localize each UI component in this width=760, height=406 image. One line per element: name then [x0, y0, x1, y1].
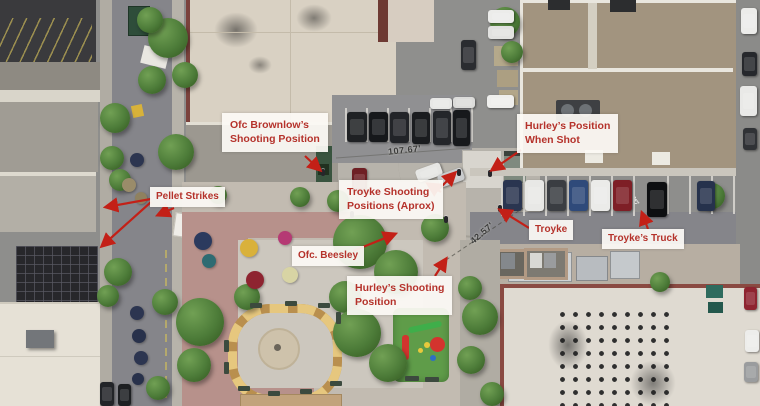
annotation-line: Hurley’s Shooting [355, 281, 444, 295]
roof-stain [548, 320, 588, 370]
person-figure [498, 205, 502, 212]
annotation-line: When Shot [525, 133, 610, 147]
annotation-line: Troyke’s Truck [608, 232, 678, 246]
bench [405, 376, 419, 381]
person-figure [457, 169, 461, 176]
car [488, 26, 514, 39]
car [430, 98, 452, 109]
car [453, 110, 470, 146]
roof-seam [190, 32, 392, 33]
car [433, 111, 451, 145]
sidewalk [470, 168, 736, 176]
building-roof [0, 102, 98, 172]
tree [100, 103, 130, 133]
annotation-troyke: Troyke [529, 220, 573, 240]
utility-box-green [706, 285, 723, 298]
car [118, 384, 131, 406]
bench [336, 312, 341, 324]
parking-stall-line [633, 176, 635, 216]
building-roof [0, 90, 100, 102]
planter-circle [278, 231, 292, 245]
play-dot-yellow [424, 342, 430, 348]
car [613, 180, 632, 211]
parking-stall-line [667, 176, 669, 214]
car [741, 8, 757, 34]
bench [268, 391, 280, 396]
bench [425, 377, 439, 382]
roof-unit-dark [548, 0, 570, 10]
roof-seam [290, 0, 291, 120]
planter-circle [240, 239, 258, 257]
car [487, 95, 514, 108]
bench [238, 386, 250, 391]
roof-stain [214, 12, 258, 48]
tree [369, 344, 407, 382]
umbrella-canopy [132, 373, 144, 385]
annotation-troyke-positions: Troyke Shooting Positions (Aprox) [339, 180, 443, 219]
troykes-truck-vehicle [647, 182, 667, 217]
annotation-line: Shooting Position [230, 132, 320, 146]
car [503, 180, 522, 211]
utility-box-green [708, 302, 723, 313]
tree [152, 289, 178, 315]
annotation-line: Pellet Strikes [156, 190, 219, 204]
tree [137, 7, 163, 33]
car [547, 180, 566, 211]
fountain-center [274, 344, 281, 351]
car [488, 10, 514, 23]
bench [224, 340, 229, 352]
tree [177, 348, 211, 382]
umbrella-canopy [134, 351, 148, 365]
bench [300, 389, 312, 394]
annotation-line: Ofc. Beesley [298, 249, 358, 263]
hvac-cluster [576, 256, 608, 281]
umbrella-canopy [130, 153, 144, 167]
car [697, 181, 715, 211]
aerial-photo: ♿ 107.67' 42.57' [0, 0, 760, 406]
car [100, 382, 114, 406]
parking-stall-line [733, 176, 735, 214]
tree [104, 258, 132, 286]
bench [224, 362, 229, 374]
annotation-troykes-truck: Troyke’s Truck [602, 229, 684, 249]
equipment-yellow [131, 104, 144, 118]
annotation-hurley-shooting: Hurley’s Shooting Position [347, 276, 452, 315]
tree [457, 346, 485, 374]
car [525, 180, 544, 211]
tree [138, 66, 166, 94]
car [347, 112, 367, 142]
dumpster-white [530, 253, 542, 268]
tree [158, 134, 194, 170]
planter-circle [282, 267, 298, 283]
annotation-hurley-when-shot: Hurley’s Position When Shot [517, 114, 618, 153]
car [743, 128, 757, 150]
parking-stall-line [471, 108, 473, 142]
tree [176, 298, 224, 346]
annotation-pellet-strikes: Pellet Strikes [150, 187, 225, 207]
annotation-ofc-beesley: Ofc. Beesley [292, 246, 364, 266]
roof-walk-line [523, 68, 733, 72]
umbrella-canopy [122, 178, 136, 192]
car [740, 86, 757, 116]
person-figure [444, 216, 448, 223]
roof-seam [0, 356, 104, 357]
skylight-white [652, 152, 670, 165]
planter-strip-tan [240, 394, 342, 406]
car [461, 40, 476, 70]
person-figure [488, 170, 492, 177]
planter-circle [194, 232, 212, 250]
roof-walk-line [588, 3, 597, 69]
play-dome-red [430, 337, 445, 352]
car [453, 97, 475, 108]
annotation-ofc-brownlow: Ofc Brownlow’s Shooting Position [222, 113, 328, 152]
umbrella-canopy [130, 306, 144, 320]
tree [146, 376, 170, 400]
bench [318, 303, 330, 308]
car [745, 330, 759, 352]
dumpster-gray [544, 253, 556, 268]
bench [285, 301, 297, 306]
small-building [378, 0, 434, 42]
umbrella-canopy [132, 329, 146, 343]
tree [290, 187, 310, 207]
car [369, 112, 388, 142]
car [742, 52, 757, 76]
play-dot-yellow [418, 348, 423, 353]
car [569, 180, 588, 211]
tree [501, 41, 523, 63]
building-roof-white [0, 302, 104, 406]
planter-circle [202, 254, 216, 268]
roof-stain [248, 56, 272, 74]
hvac-cluster [610, 251, 640, 279]
bench [250, 303, 262, 308]
building-roof [0, 62, 100, 90]
roof-stain [630, 360, 676, 406]
tree [458, 276, 482, 300]
planter-circle [246, 271, 264, 289]
tree [650, 272, 670, 292]
dumpster-gray [501, 253, 515, 269]
bench [330, 381, 342, 386]
car [744, 362, 758, 382]
tree [480, 382, 504, 406]
hvac-unit [26, 330, 54, 348]
annotation-line: Hurley’s Position [525, 119, 610, 133]
roof-stain [296, 4, 332, 32]
tree [462, 299, 498, 335]
annotation-line: Position [355, 295, 444, 309]
umbrella-canopy [135, 192, 147, 204]
annotation-line: Ofc Brownlow’s [230, 118, 320, 132]
car [744, 287, 757, 310]
sidewalk [100, 0, 112, 406]
tree [97, 285, 119, 307]
car [591, 180, 610, 211]
annotation-line: Troyke [535, 223, 567, 237]
car [390, 112, 409, 143]
shed-row-tan [497, 70, 518, 87]
building-roof [0, 176, 96, 232]
play-dot-blue [430, 355, 436, 361]
tree [100, 146, 124, 170]
parking-stripes [0, 18, 92, 62]
car [412, 112, 430, 144]
solar-panel-roof [16, 246, 98, 302]
person-figure [321, 169, 325, 176]
annotation-line: Positions (Aprox) [347, 199, 435, 213]
roof-unit-dark [610, 0, 636, 12]
annotation-line: Troyke Shooting [347, 185, 435, 199]
parking-stall-line [689, 176, 691, 214]
tree [172, 62, 198, 88]
